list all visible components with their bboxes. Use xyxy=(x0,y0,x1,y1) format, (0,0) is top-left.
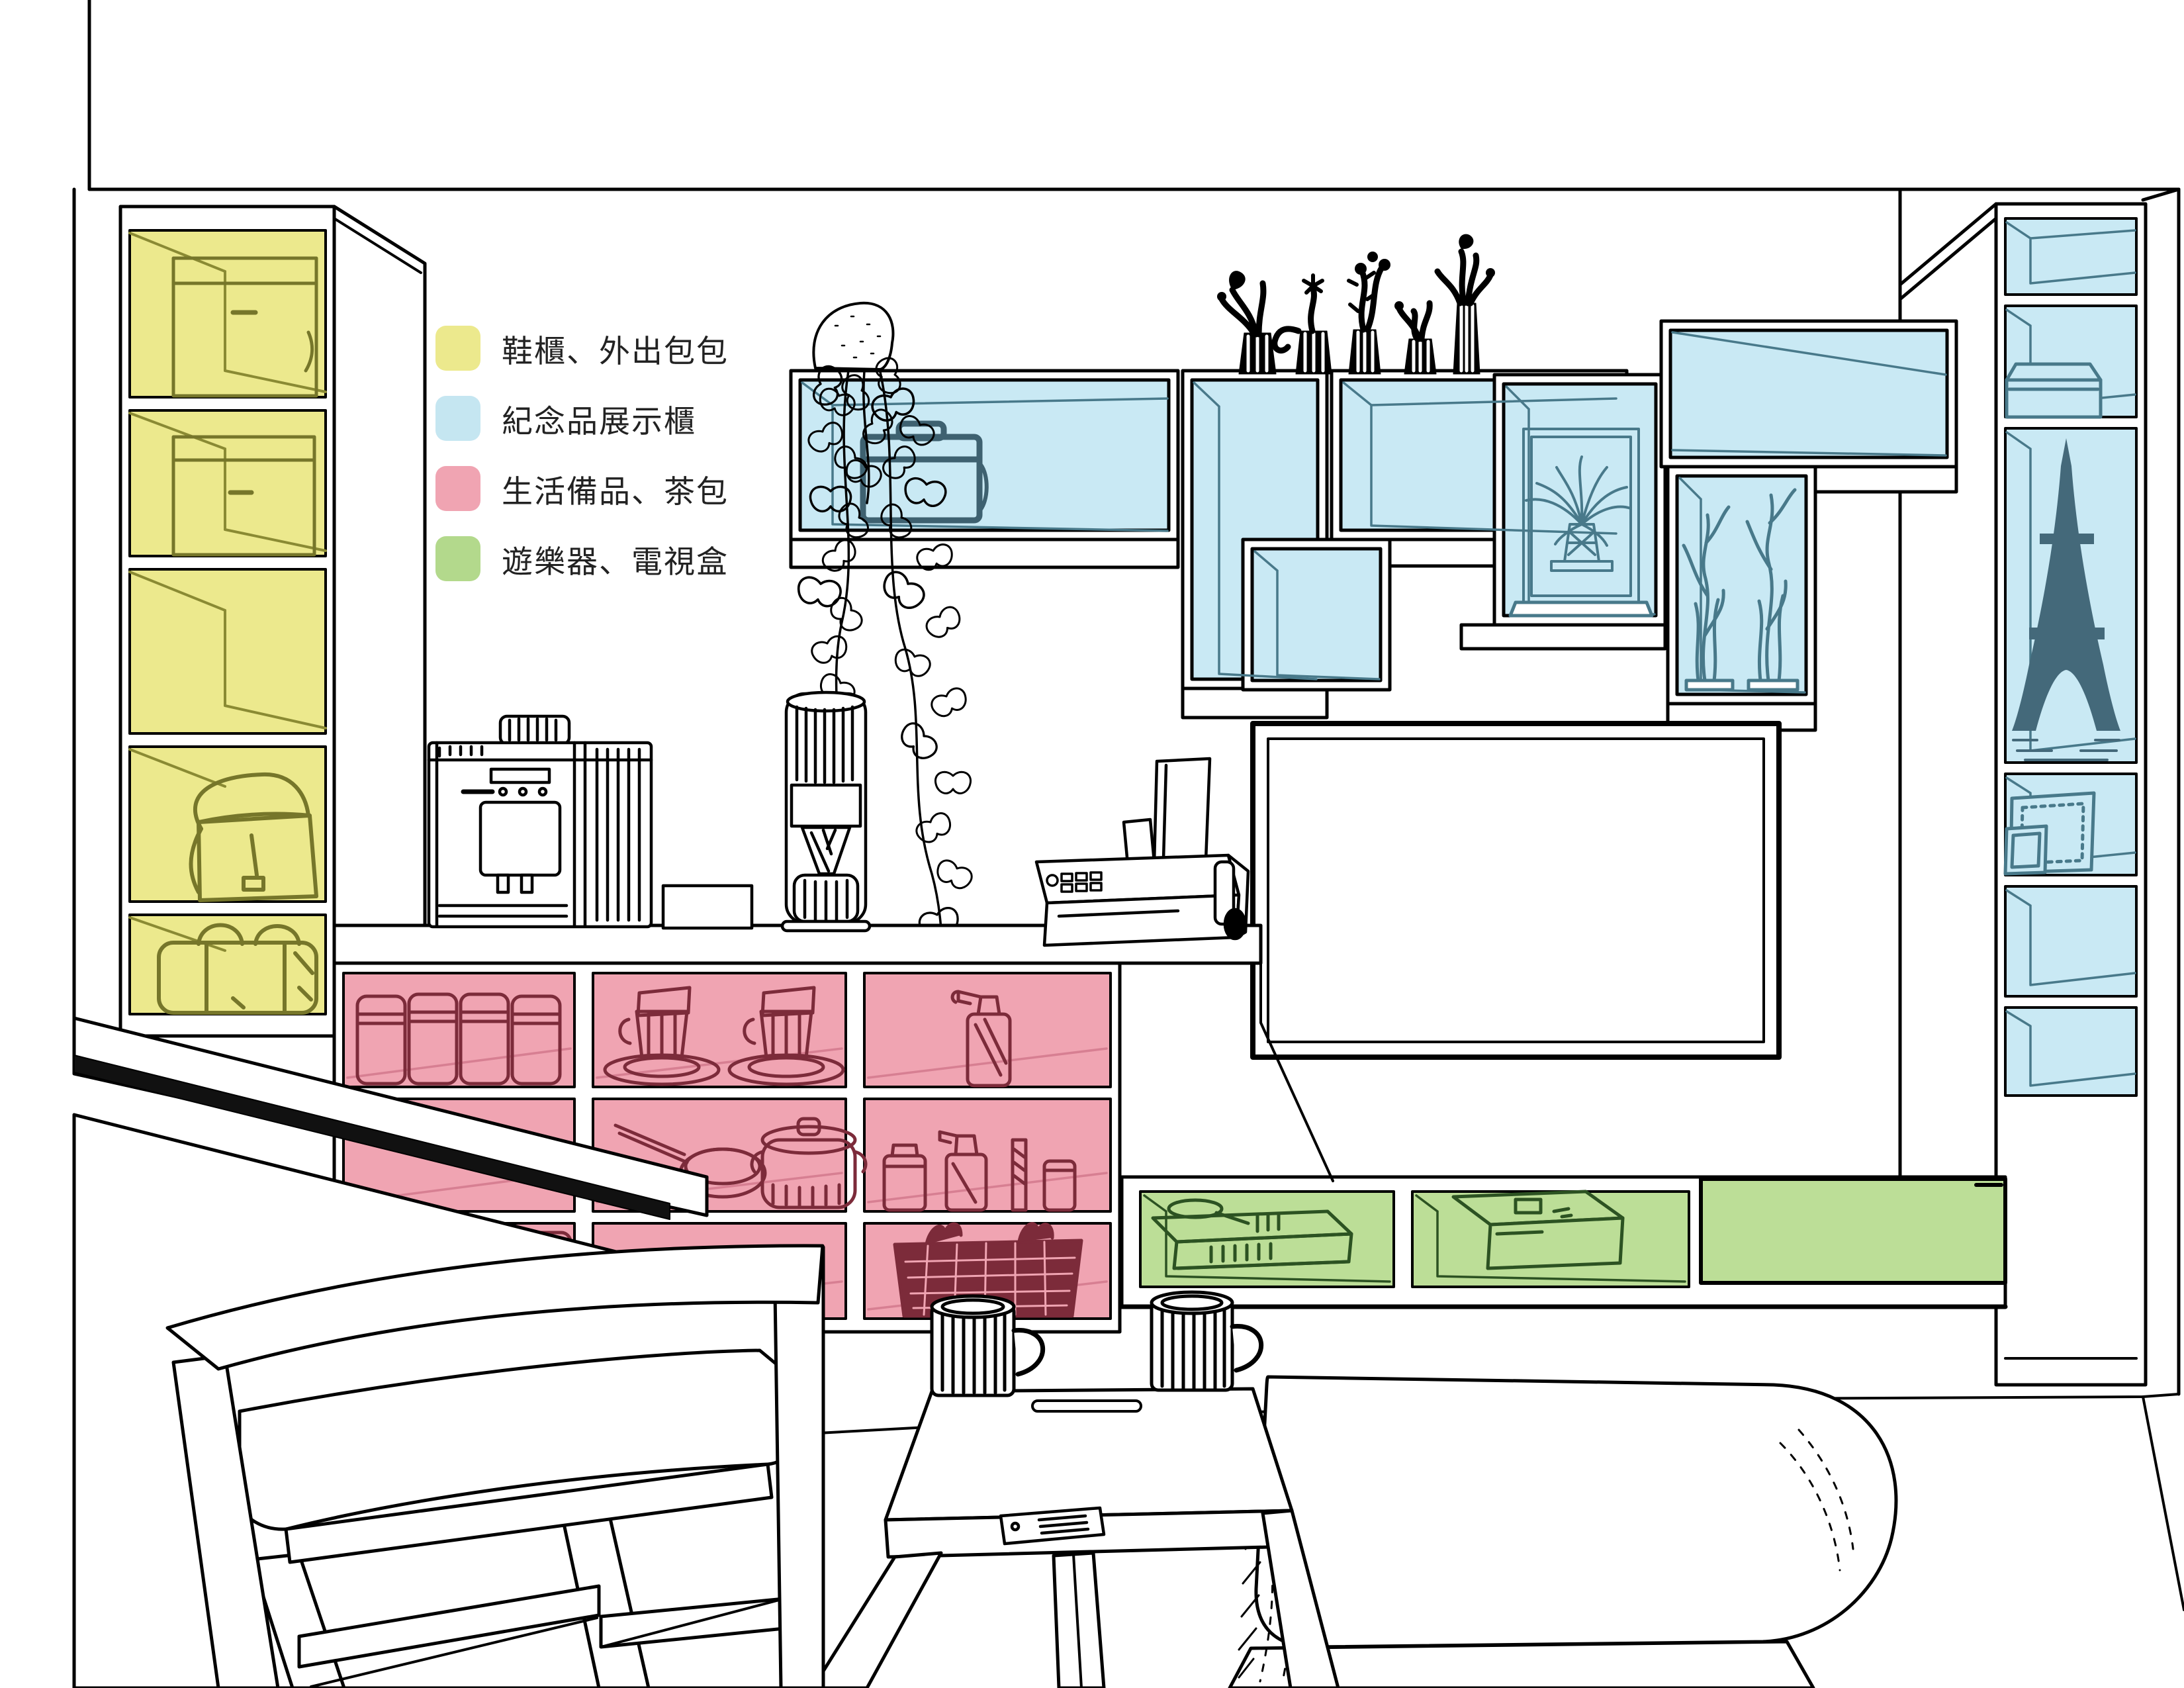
right-display-cabinet xyxy=(1996,204,2146,1385)
legend-item-shoe-cabinet: 鞋櫃、外出包包 xyxy=(435,326,729,371)
fax-machine-icon xyxy=(1036,759,1248,945)
legend-item-daily-supplies: 生活備品、茶包 xyxy=(435,466,729,511)
sofa xyxy=(1230,1377,1896,1688)
legend-swatch-pink xyxy=(435,466,480,511)
counter-appliances xyxy=(429,692,1248,945)
room-line-drawing xyxy=(0,0,2184,1688)
legend-swatch-blue xyxy=(435,396,480,441)
coffee-table xyxy=(813,1292,1338,1688)
espresso-machine-icon xyxy=(429,716,651,927)
souvenir-display-cubbies xyxy=(791,321,1956,730)
legend-label-souvenir-display: 紀念品展示櫃 xyxy=(502,396,696,442)
shoe-cabinet xyxy=(120,207,425,1036)
legend-label-shoe-cabinet: 鞋櫃、外出包包 xyxy=(502,326,729,371)
legend-label-daily-supplies: 生活備品、茶包 xyxy=(502,466,729,512)
console-door-highlight xyxy=(1701,1179,2005,1283)
pourover-tower-icon xyxy=(782,692,870,931)
legend-swatch-green xyxy=(435,536,480,581)
interior-design-illustration: 鞋櫃、外出包包 紀念品展示櫃 生活備品、茶包 遊樂器、電視盒 xyxy=(0,0,2184,1688)
media-console xyxy=(1122,1177,2005,1307)
legend-swatch-yellow xyxy=(435,326,480,371)
photo-frame-icon xyxy=(2005,793,2094,874)
box-icon xyxy=(663,886,752,928)
souvenir-box-icon xyxy=(2007,364,2101,417)
legend-label-game-console: 遊樂器、電視盒 xyxy=(502,536,729,582)
cacti-planters-icon xyxy=(1217,234,1495,374)
tv-screen xyxy=(1253,724,1779,1057)
legend-item-game-console: 遊樂器、電視盒 xyxy=(435,536,729,581)
legend-item-souvenir-display: 紀念品展示櫃 xyxy=(435,396,729,441)
legend: 鞋櫃、外出包包 紀念品展示櫃 生活備品、茶包 遊樂器、電視盒 xyxy=(435,326,729,581)
